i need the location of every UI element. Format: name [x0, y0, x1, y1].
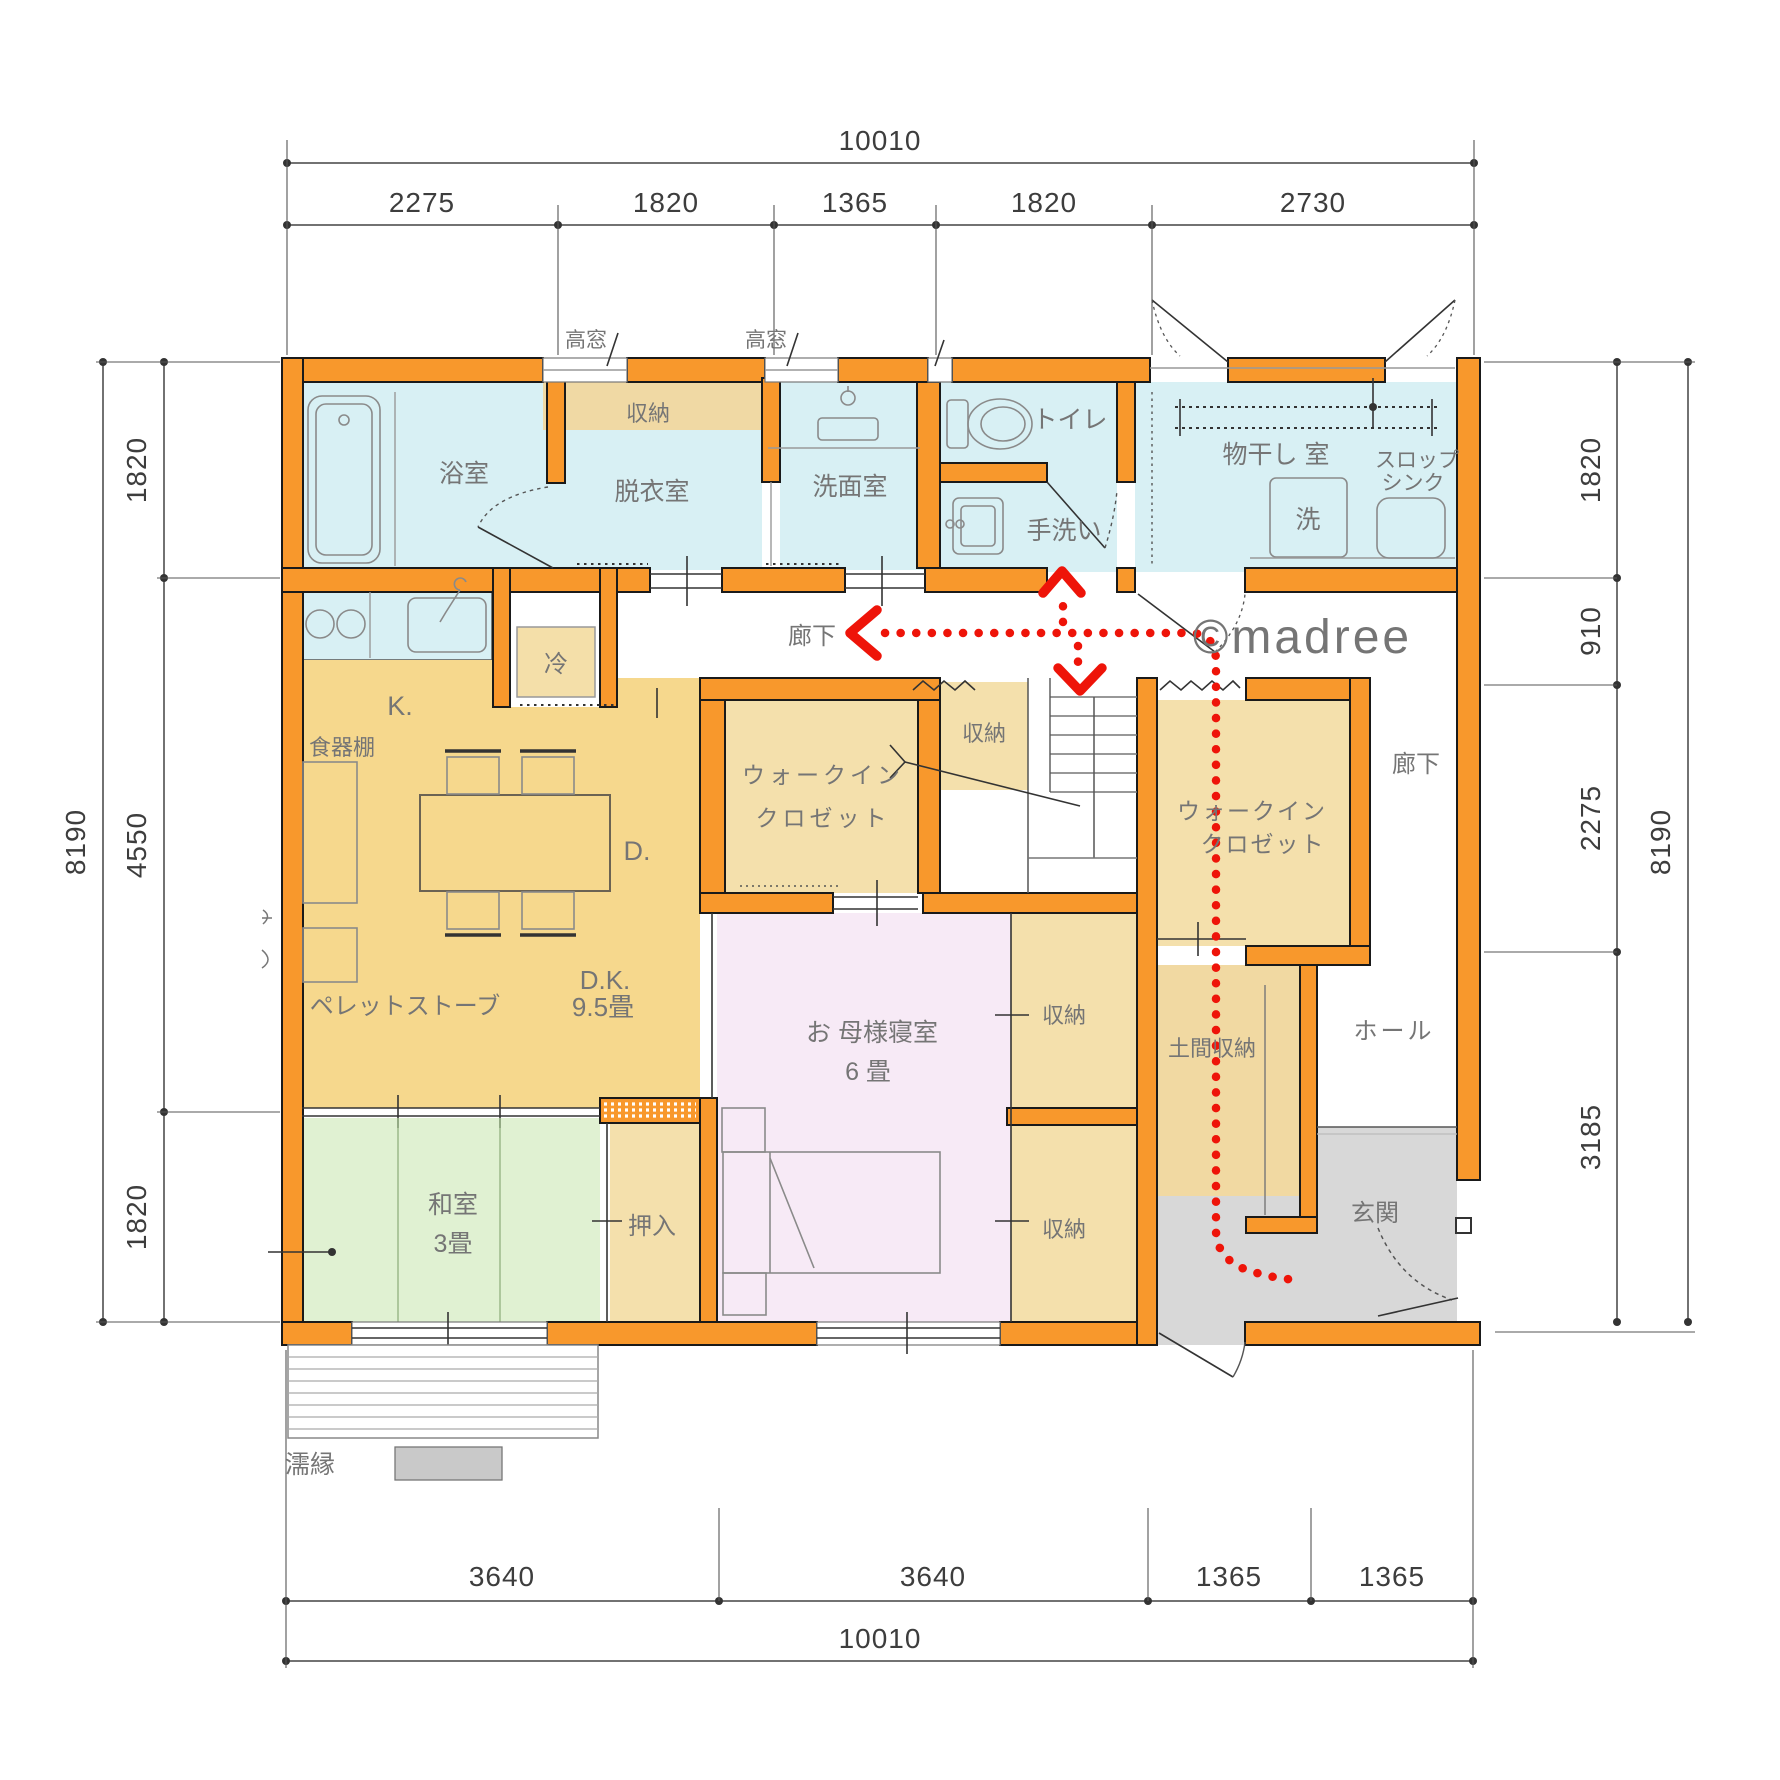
washitsu-label: 和室 [428, 1191, 478, 1219]
wic1-label-1: ウォークイン [742, 762, 904, 788]
dim-left-2: 4550 [121, 812, 152, 878]
dk-label: D.K. [580, 965, 631, 995]
dk-room [302, 660, 700, 1108]
corridor-right-label: 廊下 [1392, 751, 1440, 778]
wic1-label-2: クロゼット [756, 805, 891, 831]
washitsu-room [302, 1118, 600, 1322]
stone-step-icon [395, 1447, 502, 1480]
genkan-side-opening-floor [1157, 1322, 1245, 1345]
dressing-label: 脱衣室 [614, 478, 689, 506]
bath-label: 浴室 [439, 460, 489, 488]
storage-bed1-label: 収納 [1042, 1003, 1086, 1028]
dim-bottom-4: 1365 [1359, 1561, 1425, 1592]
washitsu-size-label: 3畳 [434, 1230, 473, 1258]
dim-right: 1820 910 2275 3185 8190 [1484, 358, 1695, 1332]
doma-storage-room [1157, 965, 1300, 1210]
dim-bottom-1: 3640 [469, 1561, 535, 1592]
genkan-label: 玄関 [1351, 1200, 1399, 1227]
dim-top-5: 2730 [1280, 187, 1346, 218]
zigzag-opening-2 [1160, 681, 1240, 690]
washer-label: 洗 [1295, 506, 1320, 534]
dim-right-2: 910 [1575, 606, 1606, 656]
handwash-label: 手洗い [1026, 517, 1101, 545]
dim-bottom-total: 10010 [839, 1623, 922, 1654]
doma-label: 土間収納 [1168, 1036, 1256, 1061]
dim-bottom-3: 1365 [1196, 1561, 1262, 1592]
watermark: ©madree [1193, 611, 1412, 664]
oshiire-label: 押入 [628, 1213, 676, 1240]
storage-stair-label: 収納 [962, 721, 1006, 746]
dk-size-label: 9.5畳 [572, 992, 634, 1022]
wic2-label-1: ウォークイン [1177, 798, 1327, 824]
bedroom-size-label: 6 畳 [845, 1058, 891, 1086]
route-arrow-left [850, 610, 877, 656]
bath-room [302, 382, 547, 568]
dim-top-total: 10010 [839, 125, 922, 156]
slop-sink-label-1: スロップ [1375, 449, 1459, 472]
fridge-label: 冷 [544, 651, 568, 678]
route-arrow-down [1058, 668, 1102, 691]
kitchen-counter [302, 590, 492, 660]
route-arrow-up [1043, 571, 1081, 593]
dining-label: D. [624, 836, 651, 866]
floor-plan-page: 10010 2275 1820 1365 1820 2730 3640 3640… [0, 0, 1780, 1780]
engawa-deck [288, 1345, 598, 1438]
dim-right-3: 2275 [1575, 785, 1606, 851]
dim-top: 10010 2275 1820 1365 1820 2730 [283, 125, 1478, 355]
toilet-label: トイレ [1032, 406, 1107, 434]
toilet-window [928, 340, 952, 382]
hall-label: ホール [1354, 1018, 1435, 1045]
floor-plan-canvas: 10010 2275 1820 1365 1820 2730 3640 3640… [0, 0, 1780, 1780]
dim-left-total: 8190 [60, 809, 91, 875]
slop-sink-label-2: シンク [1382, 472, 1445, 495]
pellet-stove-label: ペレットストーブ [310, 993, 501, 1020]
dim-top-3: 1365 [822, 187, 888, 218]
storage-bed2-label: 収納 [1042, 1217, 1086, 1242]
dim-right-4: 3185 [1575, 1104, 1606, 1170]
washroom-label: 洗面室 [812, 473, 887, 501]
bedroom-room [717, 913, 1011, 1322]
dim-right-1: 1820 [1575, 437, 1606, 503]
wic1-room [725, 700, 923, 893]
kitchen-label: K. [387, 691, 413, 721]
dressing-storage-label: 収納 [626, 401, 670, 426]
dim-top-1: 2275 [389, 187, 455, 218]
wall-marker-dot [328, 1248, 336, 1256]
dim-top-2: 1820 [633, 187, 699, 218]
dim-left-1: 1820 [121, 437, 152, 503]
bedroom-label: お 母様寝室 [806, 1019, 938, 1047]
dim-right-total: 8190 [1645, 809, 1676, 875]
dim-bottom-2: 3640 [900, 1561, 966, 1592]
corridor-label: 廊下 [788, 623, 836, 650]
drying-label: 物干し 室 [1223, 441, 1330, 469]
vent-symbol [262, 910, 272, 968]
dim-left-3: 1820 [121, 1184, 152, 1250]
dim-left: 8190 1820 4550 1820 [60, 358, 280, 1326]
dim-top-4: 1820 [1011, 187, 1077, 218]
wic2-label-2: クロゼット [1201, 831, 1326, 857]
highwin1-label: 高窓 [565, 329, 607, 352]
highwin2-label: 高窓 [745, 329, 787, 352]
engawa-label: 濡縁 [285, 1451, 335, 1479]
cupboard-label: 食器棚 [309, 735, 375, 760]
